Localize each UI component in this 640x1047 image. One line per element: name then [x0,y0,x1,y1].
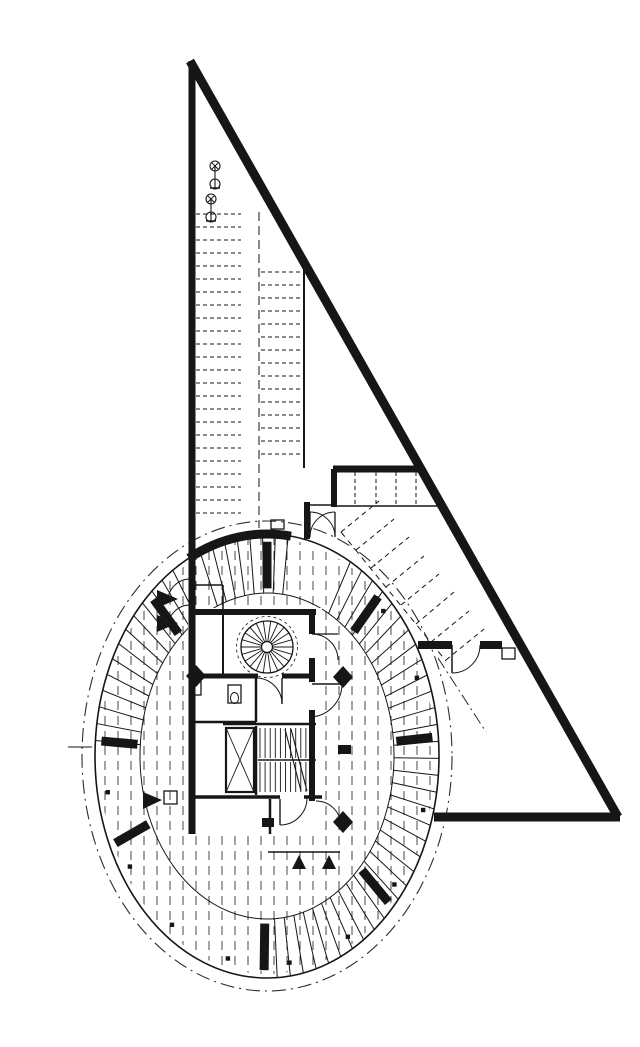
floor-plan-sheet [40,16,640,1031]
paper-background [40,16,640,1031]
floor-plan-svg [40,16,640,1031]
